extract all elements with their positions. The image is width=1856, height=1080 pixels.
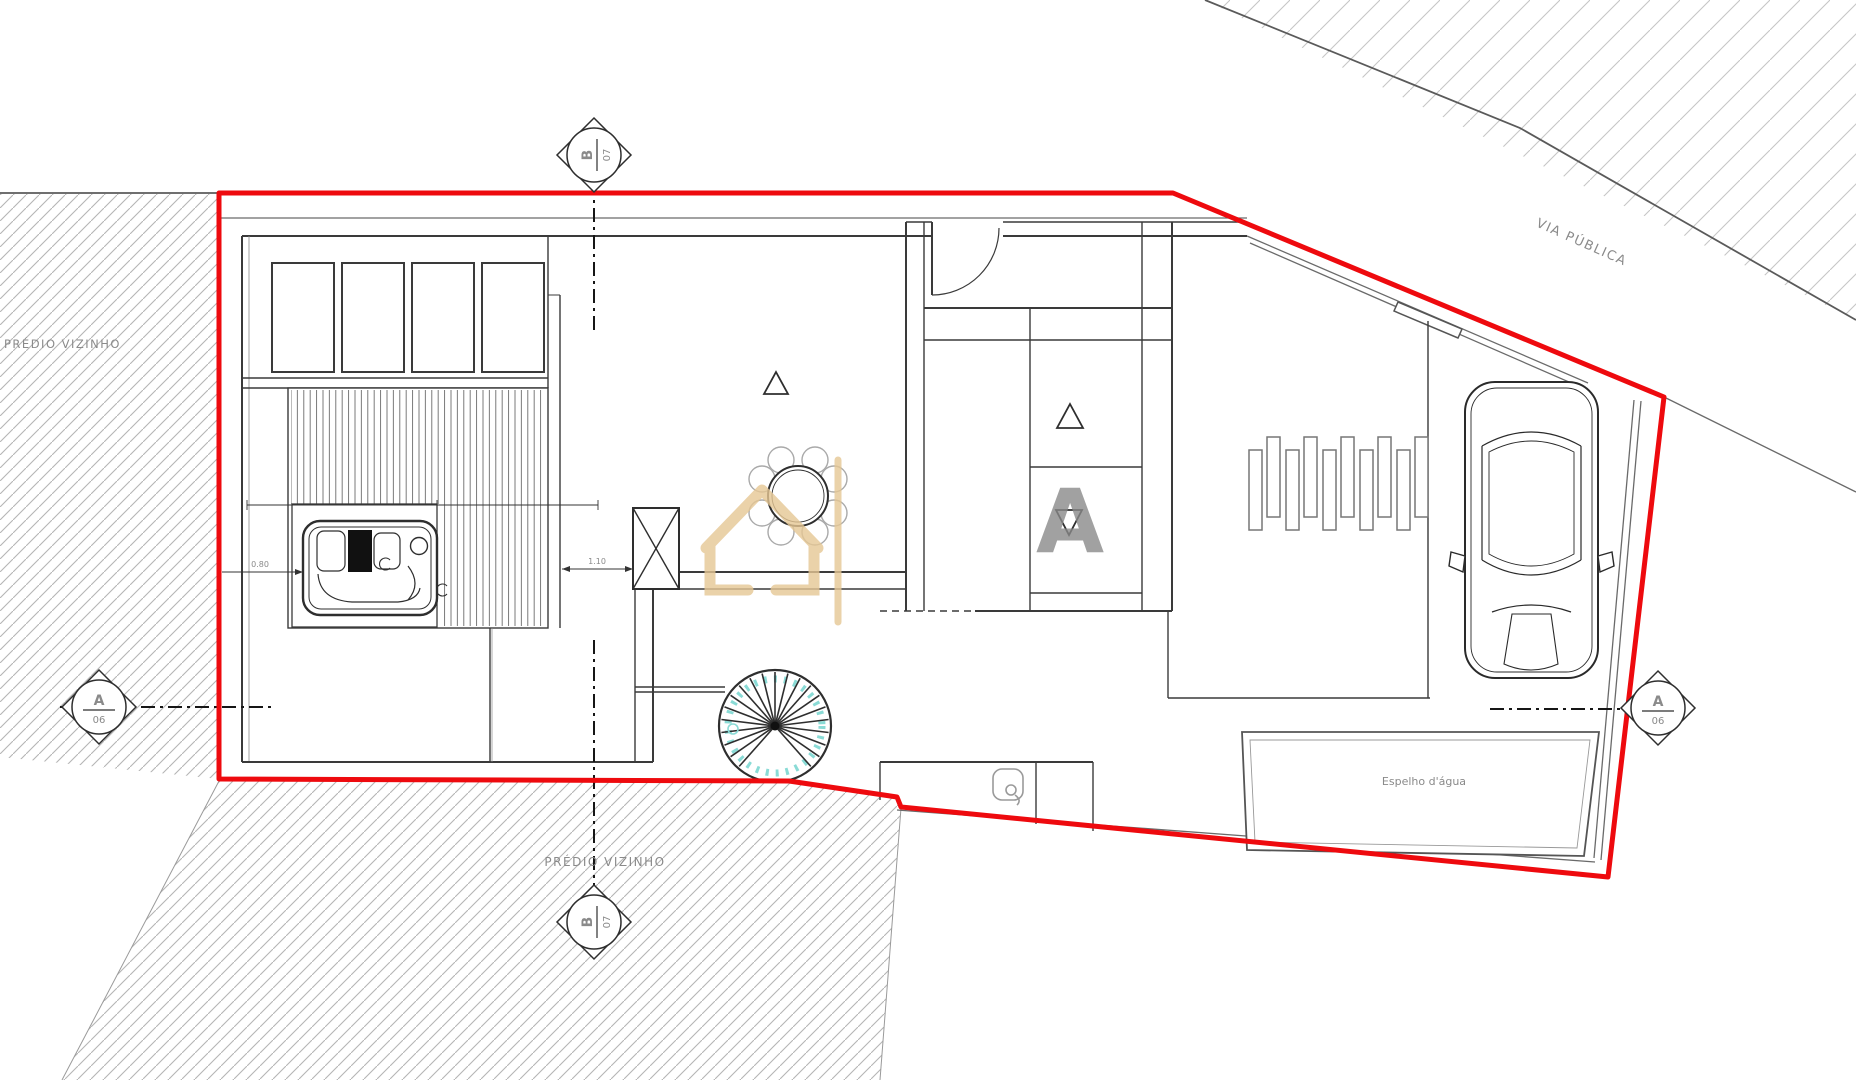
- svg-text:06: 06: [1652, 716, 1665, 727]
- svg-text:06: 06: [93, 715, 106, 726]
- car: [1449, 382, 1614, 678]
- shower-icon: [993, 769, 1023, 805]
- skylights: [272, 263, 544, 372]
- svg-text:A: A: [1653, 694, 1664, 710]
- svg-text:07: 07: [602, 916, 613, 929]
- spiral-staircase: [719, 670, 831, 782]
- neighbor-label-bottom: PRÉDIO VIZINHO: [544, 854, 665, 869]
- site-plan-page: A Espelho d'água: [0, 0, 1856, 1080]
- svg-text:B: B: [580, 917, 596, 928]
- water-mirror-label: Espelho d'água: [1382, 775, 1466, 788]
- public-road-hatch-topright: [1205, 0, 1856, 320]
- door-swing: [932, 222, 999, 295]
- svg-text:B: B: [580, 150, 596, 161]
- site-plan-drawing: A Espelho d'água: [0, 0, 1856, 1080]
- water-mirror-pool: Espelho d'água: [1242, 732, 1599, 856]
- svg-text:07: 07: [602, 149, 613, 162]
- public-road-label: VIA PÚBLICA: [1534, 215, 1630, 269]
- column: [633, 508, 679, 589]
- dim-label-jacuzzi: 0.80: [251, 560, 269, 569]
- dim-label-door: 1.10: [588, 557, 606, 566]
- section-marker-top: B 07: [557, 118, 631, 192]
- svg-text:A: A: [94, 693, 105, 709]
- neighbor-hatch-bottom: [62, 781, 901, 1080]
- hot-tub: [303, 521, 447, 615]
- louver-slats: [1249, 437, 1428, 530]
- neighbor-label-left: PRÉDIO VIZINHO: [4, 336, 121, 351]
- watermark-letter: A: [1036, 470, 1104, 573]
